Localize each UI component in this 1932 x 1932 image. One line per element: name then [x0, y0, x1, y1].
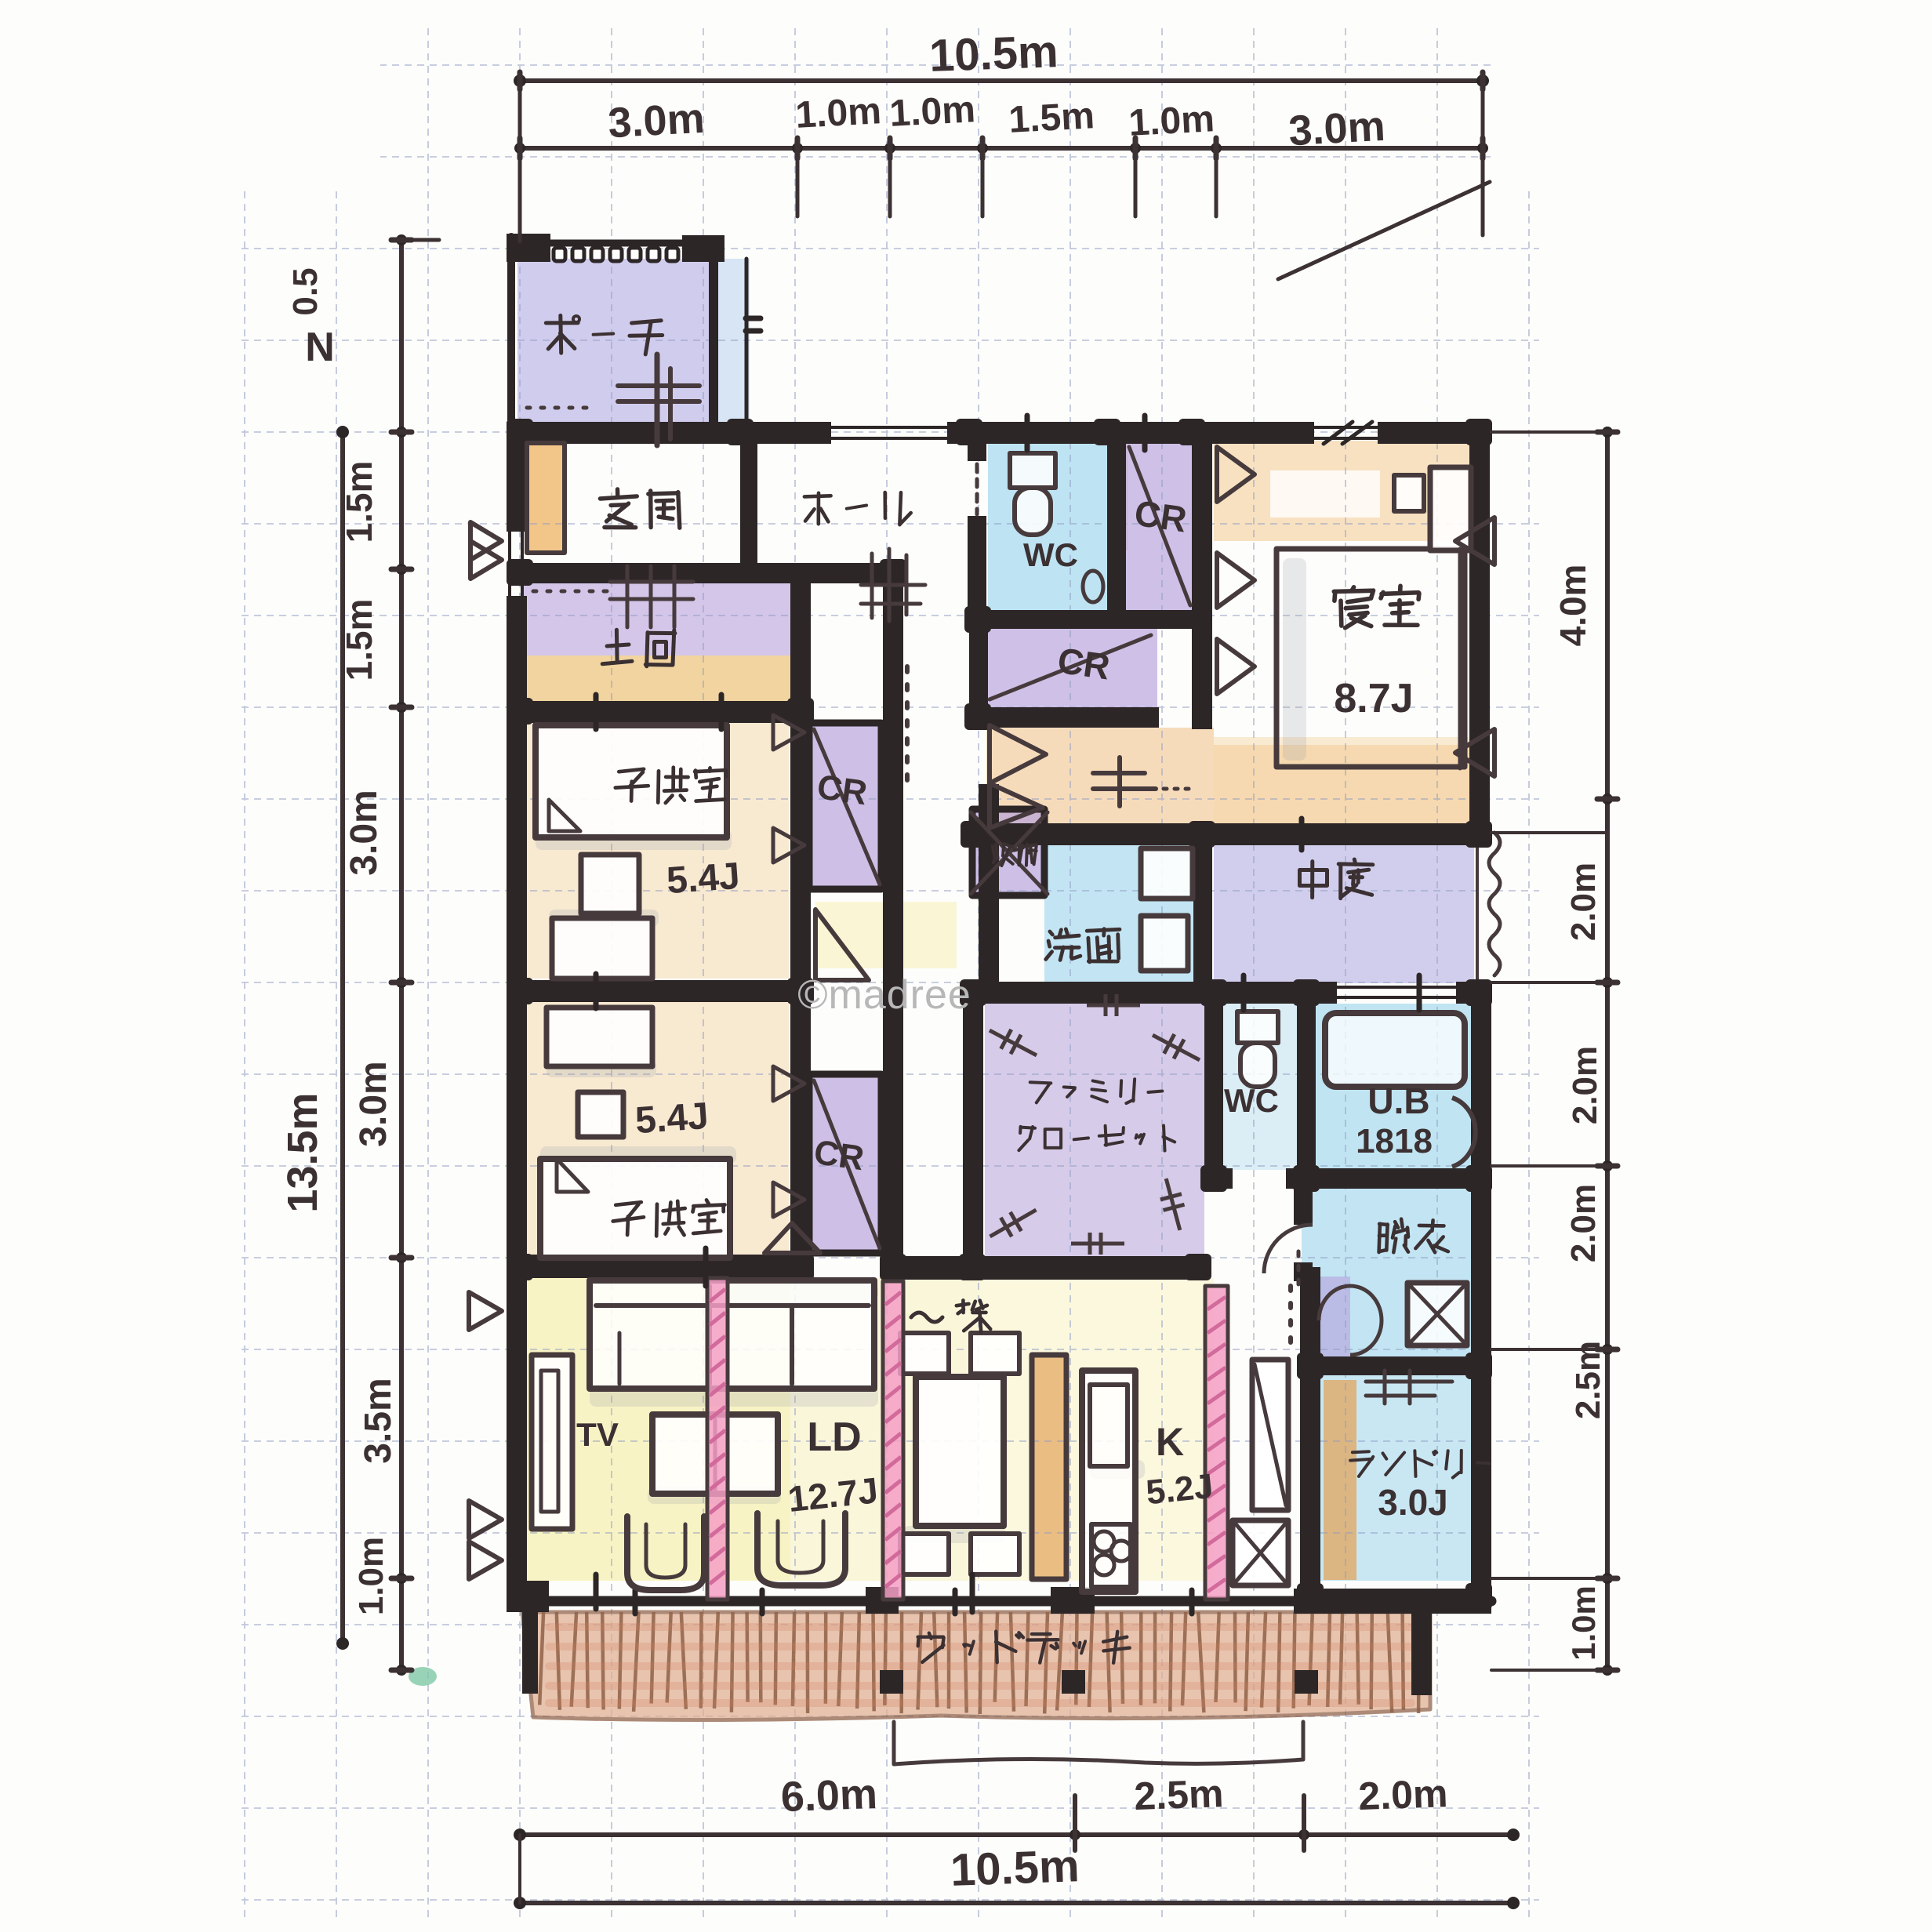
svg-text:2.0m: 2.0m: [1564, 862, 1603, 941]
svg-text:5.2J: 5.2J: [1144, 1467, 1215, 1513]
svg-text:2.0m: 2.0m: [1566, 1046, 1604, 1124]
svg-text:TV: TV: [576, 1416, 619, 1453]
svg-text:1.0m: 1.0m: [888, 89, 976, 135]
svg-text:6.0m: 6.0m: [780, 1770, 878, 1821]
svg-text:1.0m: 1.0m: [1128, 98, 1215, 144]
svg-text:CR: CR: [812, 1133, 866, 1178]
svg-text:10.5m: 10.5m: [928, 26, 1059, 82]
svg-text:K: K: [1156, 1420, 1184, 1464]
svg-text:1.0m: 1.0m: [1565, 1585, 1602, 1661]
svg-text:1.5m: 1.5m: [339, 599, 379, 681]
svg-text:10.5m: 10.5m: [950, 1840, 1080, 1896]
svg-text:3.0m: 3.0m: [343, 790, 385, 875]
svg-text:U.B: U.B: [1367, 1080, 1429, 1121]
svg-text:3.5m: 3.5m: [358, 1378, 399, 1463]
svg-text:©madree: ©madree: [797, 972, 971, 1018]
svg-text:1.5m: 1.5m: [339, 461, 379, 543]
svg-text:1.0m: 1.0m: [794, 90, 882, 136]
svg-text:2.5m: 2.5m: [1569, 1341, 1607, 1419]
svg-text:3.0J: 3.0J: [1378, 1482, 1448, 1523]
svg-text:5.4J: 5.4J: [665, 855, 741, 902]
svg-text:3.0m: 3.0m: [607, 95, 706, 147]
svg-text:CR: CR: [815, 768, 870, 812]
svg-text:WC: WC: [1224, 1082, 1279, 1119]
svg-text:2.0m: 2.0m: [1357, 1771, 1448, 1818]
svg-text:13.5m: 13.5m: [279, 1092, 326, 1212]
svg-text:2.0m: 2.0m: [1564, 1184, 1603, 1262]
svg-text:1818: 1818: [1356, 1122, 1433, 1160]
svg-text:CR: CR: [1055, 640, 1113, 688]
svg-text:N: N: [305, 325, 335, 370]
svg-text:0.5: 0.5: [286, 267, 325, 315]
svg-text:1.0m: 1.0m: [352, 1537, 390, 1615]
svg-text:1.5m: 1.5m: [1008, 95, 1095, 141]
svg-text:4.0m: 4.0m: [1552, 565, 1593, 647]
svg-text:8.7J: 8.7J: [1334, 676, 1413, 721]
svg-text:3.0m: 3.0m: [1287, 103, 1386, 154]
svg-text:CR: CR: [1132, 492, 1189, 540]
svg-text:WC: WC: [1023, 536, 1078, 573]
svg-text:3.0m: 3.0m: [353, 1061, 394, 1146]
svg-text:5.4J: 5.4J: [634, 1095, 710, 1142]
svg-text:2.5m: 2.5m: [1133, 1771, 1224, 1818]
svg-text:LD: LD: [807, 1414, 861, 1460]
